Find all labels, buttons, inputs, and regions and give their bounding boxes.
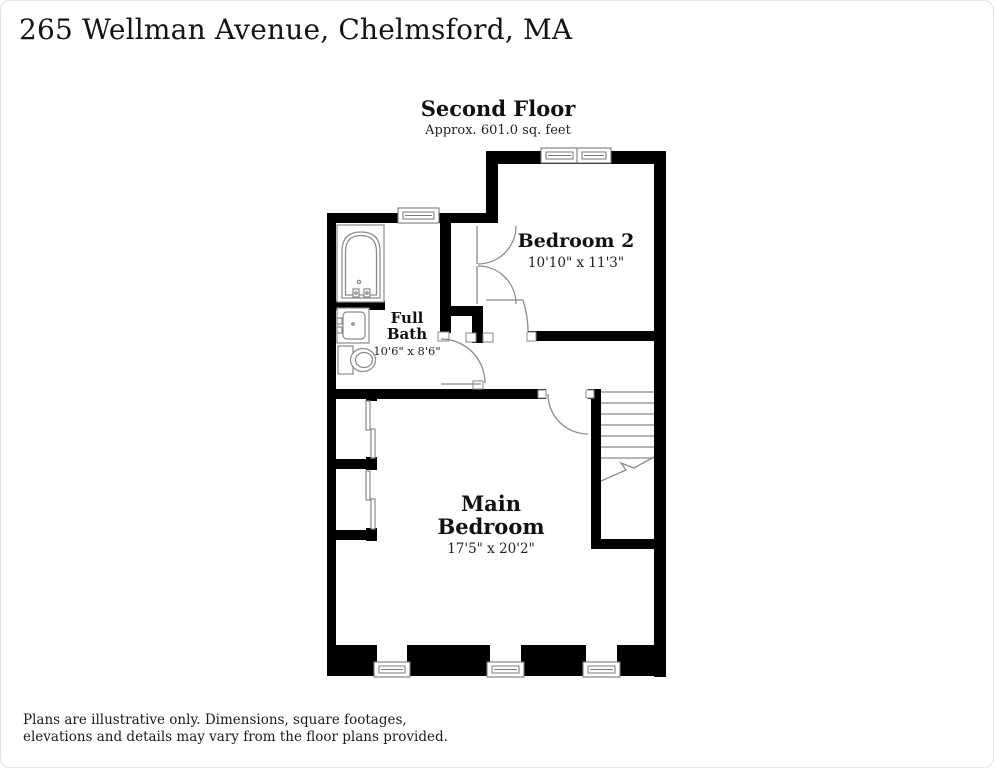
room-name-line2: Bath — [373, 326, 440, 342]
room-label-main-bedroom: Main Bedroom 17'5" x 20'2" — [437, 492, 544, 557]
toilet-icon — [338, 346, 376, 374]
room-dimensions: 10'10" x 11'3" — [518, 255, 635, 271]
stair-break-line — [601, 457, 654, 481]
room-name-line1: Main — [437, 492, 544, 515]
bathtub-icon — [337, 225, 384, 302]
plan-title: Second Floor — [421, 96, 576, 121]
window-icon — [374, 148, 620, 677]
room-label-full-bath: Full Bath 10'6" x 8'6" — [373, 310, 440, 358]
disclaimer: Plans are illustrative only. Dimensions,… — [23, 712, 448, 746]
plan-square-footage: Approx. 601.0 sq. feet — [421, 123, 576, 138]
room-dimensions: 17'5" x 20'2" — [437, 541, 544, 557]
plan-heading: Second Floor Approx. 601.0 sq. feet — [421, 96, 576, 138]
room-name-line1: Full — [373, 310, 440, 326]
floor-plan-page: 265 Wellman Avenue, Chelmsford, MA Secon… — [0, 0, 994, 768]
room-label-bedroom-2: Bedroom 2 10'10" x 11'3" — [518, 230, 635, 271]
staircase — [601, 392, 654, 481]
disclaimer-line1: Plans are illustrative only. Dimensions,… — [23, 712, 448, 729]
page-title: 265 Wellman Avenue, Chelmsford, MA — [19, 13, 572, 46]
sink-icon — [337, 308, 369, 343]
door-jamb — [438, 332, 594, 398]
disclaimer-line2: elevations and details may vary from the… — [23, 729, 448, 746]
room-name: Bedroom 2 — [518, 230, 635, 252]
room-name-line2: Bedroom — [437, 515, 544, 538]
room-dimensions: 10'6" x 8'6" — [373, 344, 440, 358]
